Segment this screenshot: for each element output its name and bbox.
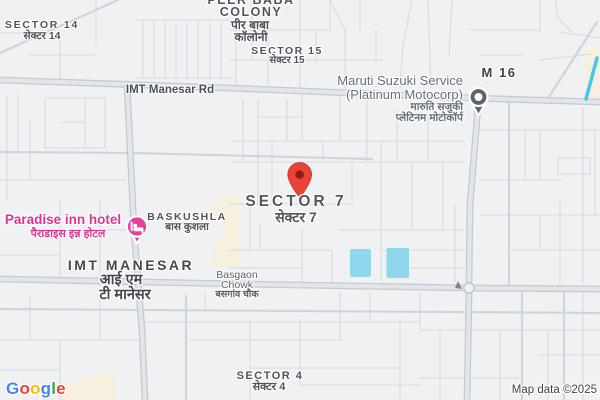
map-attribution: Map data ©2025 (512, 384, 597, 396)
label-sector-4-hindi: सेक्टर 4 (253, 382, 286, 394)
google-logo-letter: o (30, 379, 41, 398)
label-imt-manesar-road: IMT Manesar Rd (126, 84, 214, 96)
google-logo-letter: G (6, 379, 19, 398)
label-baskushla-hindi: बास कुशला (165, 222, 209, 233)
label-imt-manesar-hindi: टी मानेसर (99, 288, 150, 304)
label-sector-7-hindi: सेक्टर 7 (275, 210, 317, 225)
google-logo-letter: o (19, 379, 30, 398)
google-logo-letter: e (56, 379, 66, 398)
label-sector-15-hindi: सेक्टर 15 (269, 56, 304, 67)
google-logo[interactable]: Google (6, 380, 66, 398)
roundabout (464, 283, 474, 293)
map-canvas[interactable]: SECTOR 14 सेक्टर 14 PEER BABA COLONY पीर… (0, 0, 600, 400)
google-logo-letter: g (41, 379, 52, 398)
label-paradise-inn-hotel-hindi[interactable]: पैराडाइस इन्न होटल (31, 229, 106, 241)
label-paradise-inn-hotel[interactable]: Paradise inn hotel (5, 213, 121, 228)
label-sector-14-hindi: सेक्टर 14 (23, 31, 60, 42)
label-basgaon-chowk: Basgaon Chowk बसगांव चौक (215, 270, 258, 299)
label-imt-manesar: IMT MANESAR (68, 258, 194, 273)
label-peer-baba-colony-hindi: कॉलोनी (234, 31, 267, 44)
label-m16: M 16 (482, 66, 517, 80)
label-maruti-suzuki-service[interactable]: Maruti Suzuki Service (Platinum Motocorp… (337, 74, 463, 124)
